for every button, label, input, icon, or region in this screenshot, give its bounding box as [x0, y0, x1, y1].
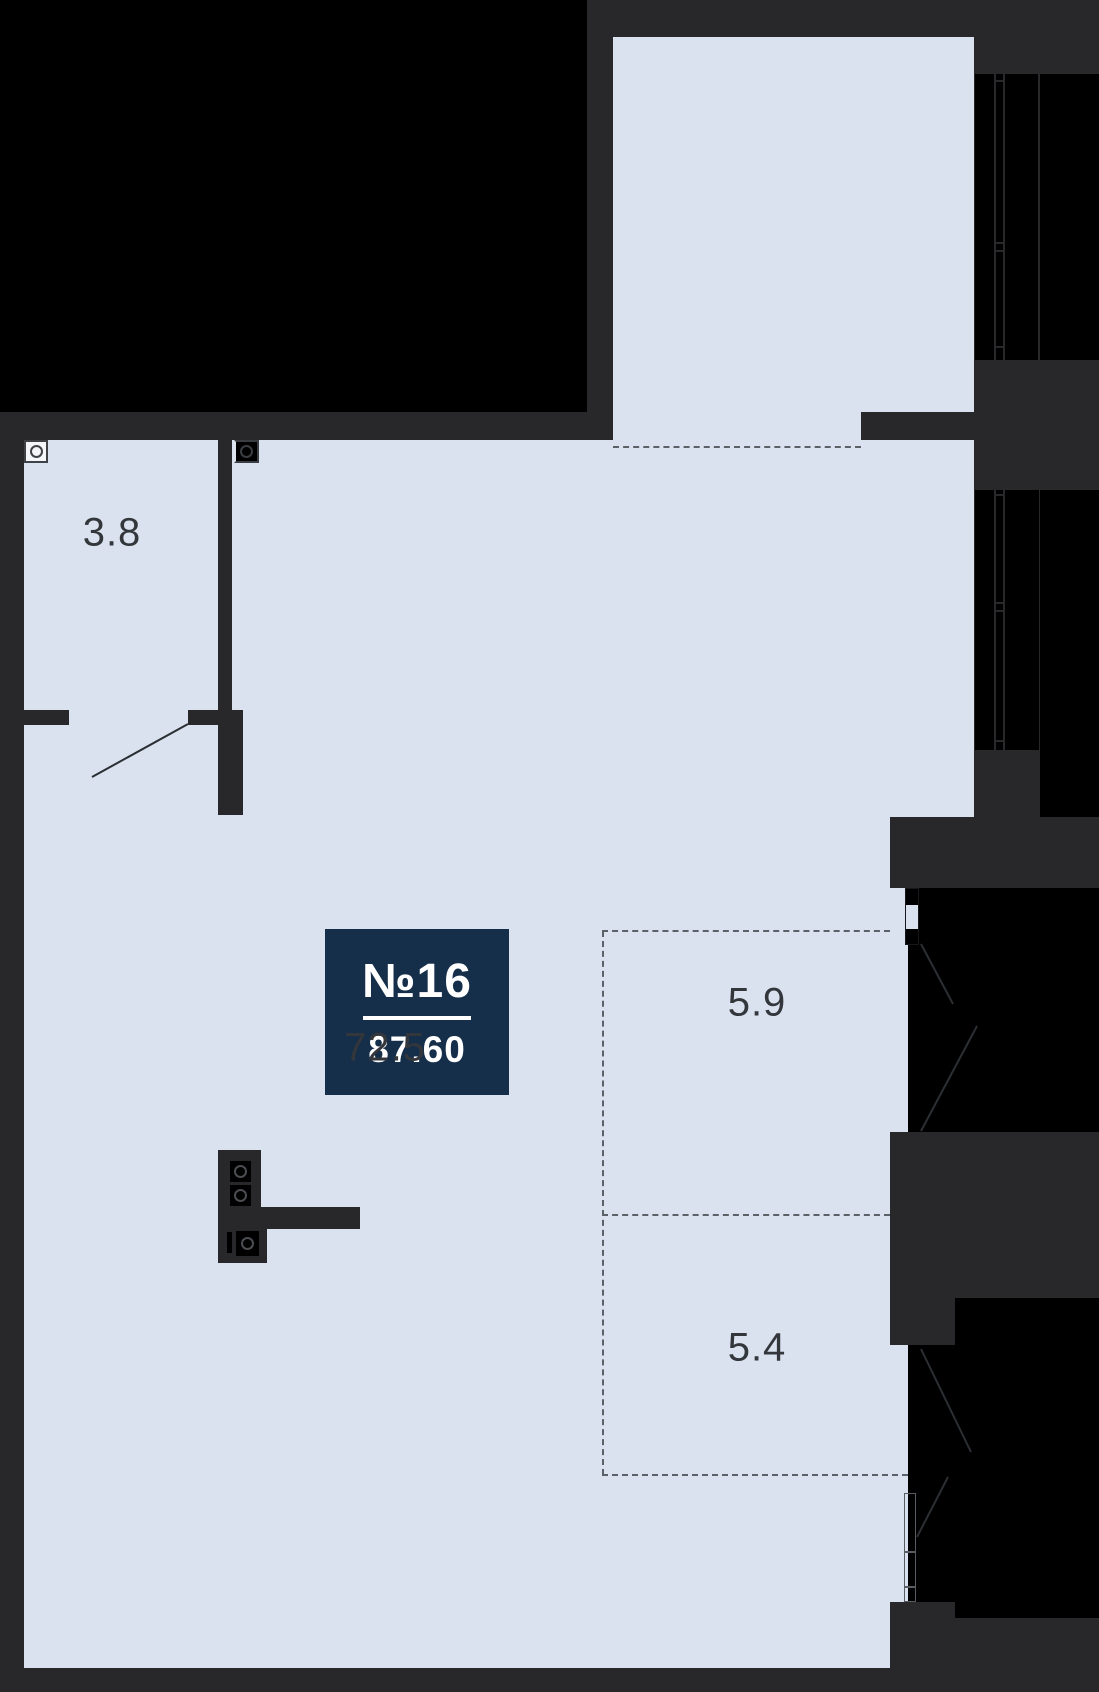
vent-circle-icon: [240, 445, 253, 458]
ventilation-shaft-icon: [234, 440, 259, 463]
room-label-main: 72.5: [344, 1026, 426, 1071]
stove-burner-icon: [230, 1161, 251, 1182]
door-swing-balcony-lower-1: [921, 1349, 971, 1452]
stove-burner-icon: [230, 1185, 251, 1206]
ventilation-icon: [24, 440, 48, 463]
burner-circle-icon: [234, 1189, 247, 1202]
kitchen-counter-arm: [261, 1207, 360, 1229]
badge-divider: [363, 1016, 471, 1020]
sink-bar-icon: [227, 1232, 232, 1253]
vent-circle-icon: [30, 445, 43, 458]
door-swing-lines: [0, 0, 1099, 1692]
room-label-loggia-lower: 5.4: [728, 1326, 787, 1371]
floor-plan: №16 87.60 3.8 72.5 5.9 5.4: [0, 0, 1099, 1692]
unit-number: №16: [362, 954, 472, 1009]
room-label-hall: 3.8: [83, 511, 142, 556]
sink-circle-icon: [241, 1237, 254, 1250]
door-swing-balcony-upper-1: [921, 944, 953, 1004]
room-label-loggia-upper: 5.9: [728, 981, 787, 1026]
door-swing-balcony-lower-2: [917, 1477, 948, 1537]
door-swing-balcony-upper-2: [921, 1026, 977, 1131]
door-swing-hall: [92, 724, 188, 777]
sink-icon: [236, 1231, 259, 1256]
burner-circle-icon: [234, 1165, 247, 1178]
